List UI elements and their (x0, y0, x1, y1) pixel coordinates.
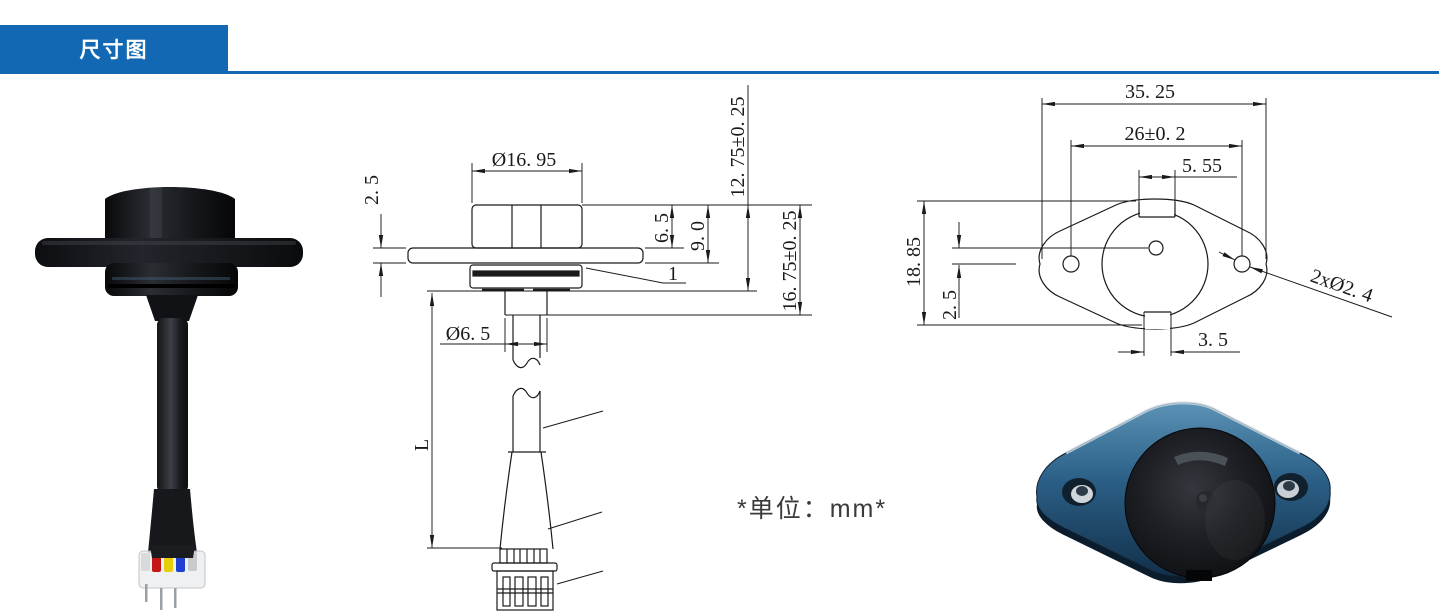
dim-notch-width: 5. 55 (1182, 155, 1222, 177)
dim-flange-thickness: 2. 5 (361, 175, 383, 205)
section-header-bar: 尺寸图 (0, 25, 228, 72)
dim-center-offset: 2. 5 (939, 290, 961, 320)
head-notch (1186, 570, 1212, 581)
dim-flange-width: 35. 25 (1125, 81, 1175, 103)
dim-height-to-stem: 16. 75±0. 25 (779, 211, 801, 312)
sensor-photo-shapes (35, 187, 303, 610)
product-photo-mounted (1025, 393, 1345, 611)
mounted-sensor-shapes (1037, 403, 1331, 583)
wire-silver-left (141, 553, 150, 571)
dim-mount-holes: 2xØ2. 4 (1308, 265, 1376, 307)
dim-cable-diameter: Ø6. 5 (446, 323, 490, 345)
side-view-outline (408, 205, 643, 610)
callout-1-label: 1 (668, 263, 678, 285)
unit-note: *单位：mm* (737, 489, 887, 525)
top-view-outline (1039, 199, 1267, 329)
dim-cap-to-flange: 9. 0 (687, 221, 709, 251)
page-title: 尺寸图 (80, 34, 149, 64)
header-rule (0, 71, 1439, 74)
dim-height-to-nut: 12. 75±0. 25 (727, 97, 749, 198)
side-view-labels: Ø16. 95 2. 5 6. 5 9. 0 12. 75±0. 25 16. … (361, 97, 801, 452)
dim-hole-spacing: 26±0. 2 (1125, 123, 1186, 145)
dim-cap-diameter: Ø16. 95 (492, 149, 556, 171)
top-view-drawing: 35. 25 26±0. 2 5. 55 18. 85 2. 5 3. 5 2x… (895, 80, 1405, 370)
dim-cap-height: 6. 5 (651, 213, 673, 243)
dim-flange-height: 18. 85 (903, 237, 925, 287)
side-view-drawing: Ø16. 95 2. 5 6. 5 9. 0 12. 75±0. 25 16. … (355, 78, 825, 614)
dim-tab-width: 3. 5 (1198, 329, 1228, 351)
dim-cable-length: L (411, 439, 433, 451)
product-photo-front (25, 175, 315, 614)
page: 尺寸图 (0, 0, 1439, 614)
